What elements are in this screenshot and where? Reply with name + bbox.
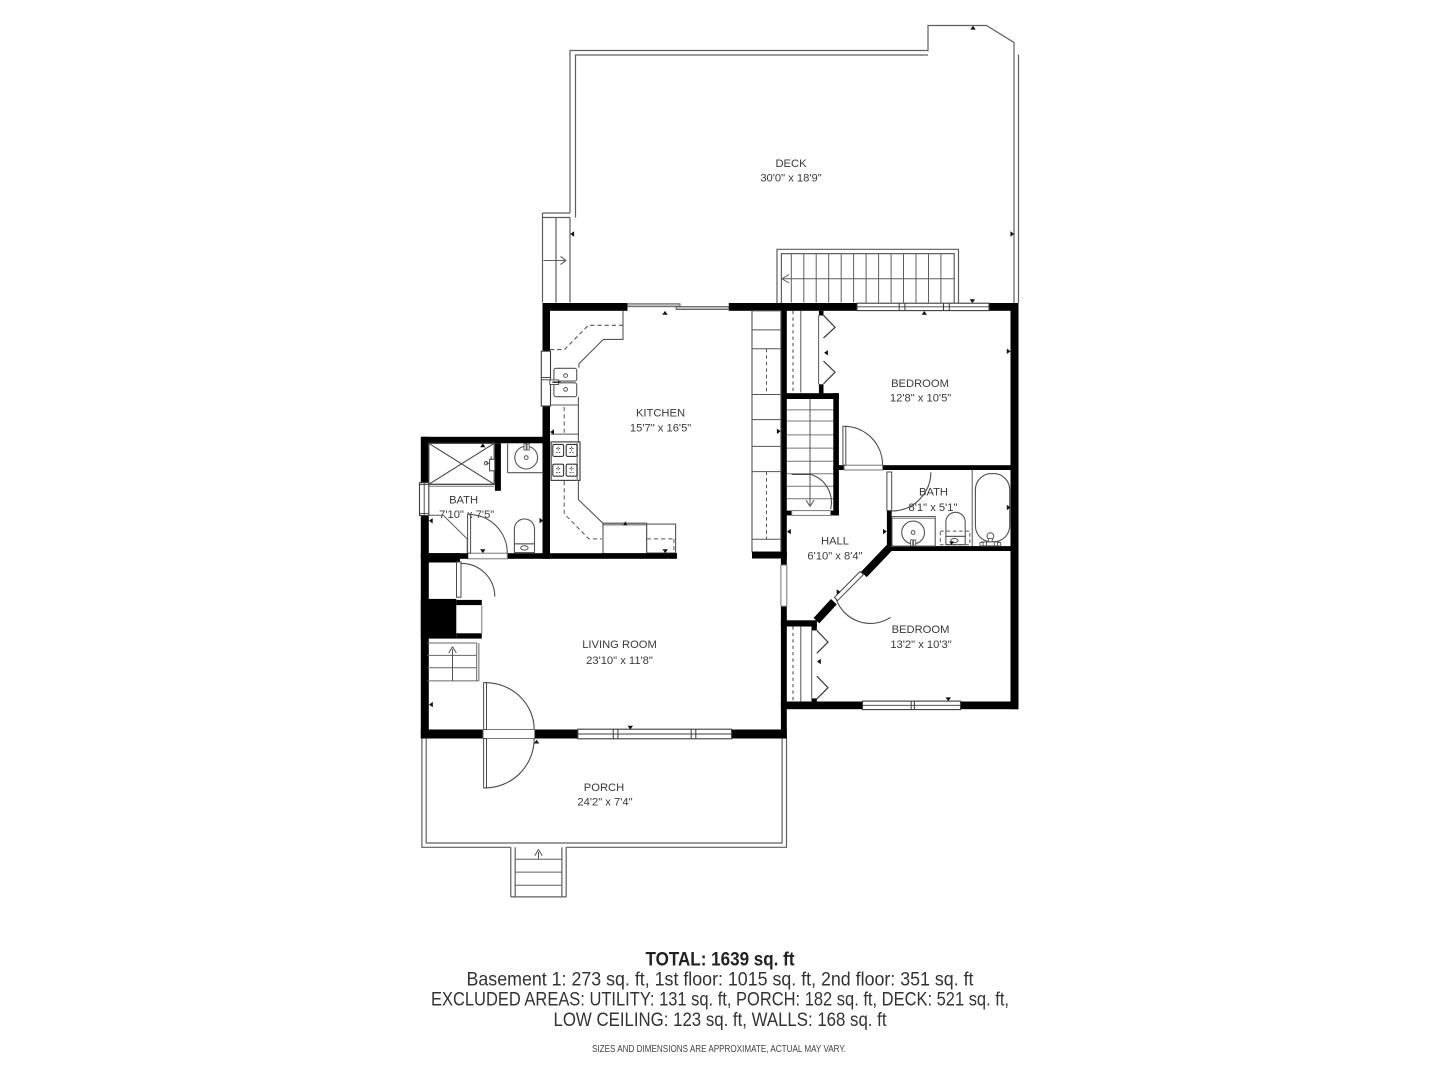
svg-text:KITCHEN: KITCHEN xyxy=(636,408,685,420)
svg-text:SIZES AND DIMENSIONS ARE APPRO: SIZES AND DIMENSIONS ARE APPROXIMATE, AC… xyxy=(592,1044,846,1055)
svg-text:LOW CEILING: 123 sq. ft, WALLS: LOW CEILING: 123 sq. ft, WALLS: 168 sq. … xyxy=(554,1009,887,1031)
svg-text:Basement 1: 273 sq. ft, 1st fl: Basement 1: 273 sq. ft, 1st floor: 1015 … xyxy=(467,969,975,991)
svg-text:23'10" x 11'8": 23'10" x 11'8" xyxy=(586,655,653,667)
svg-text:6'10" x 8'4": 6'10" x 8'4" xyxy=(807,551,862,563)
svg-text:BEDROOM: BEDROOM xyxy=(891,378,949,390)
svg-text:13'2" x 10'3": 13'2" x 10'3" xyxy=(890,639,951,651)
svg-text:BATH: BATH xyxy=(919,487,948,499)
svg-text:BEDROOM: BEDROOM xyxy=(892,624,950,636)
svg-text:PORCH: PORCH xyxy=(584,782,624,794)
svg-text:15'7" x 16'5": 15'7" x 16'5" xyxy=(630,422,691,434)
svg-text:12'8" x 10'5": 12'8" x 10'5" xyxy=(890,392,951,404)
svg-text:LIVING ROOM: LIVING ROOM xyxy=(582,639,657,651)
svg-text:24'2" x 7'4": 24'2" x 7'4" xyxy=(577,796,632,808)
svg-text:8'1" x 5'1": 8'1" x 5'1" xyxy=(909,502,958,514)
svg-text:EXCLUDED AREAS: UTILITY: 131 s: EXCLUDED AREAS: UTILITY: 131 sq. ft, POR… xyxy=(431,989,1009,1011)
svg-text:DECK: DECK xyxy=(775,158,807,170)
svg-text:BATH: BATH xyxy=(449,495,478,507)
svg-text:30'0" x 18'9": 30'0" x 18'9" xyxy=(760,173,821,185)
svg-text:TOTAL: 1639 sq. ft: TOTAL: 1639 sq. ft xyxy=(646,948,795,970)
svg-text:HALL: HALL xyxy=(821,536,849,548)
